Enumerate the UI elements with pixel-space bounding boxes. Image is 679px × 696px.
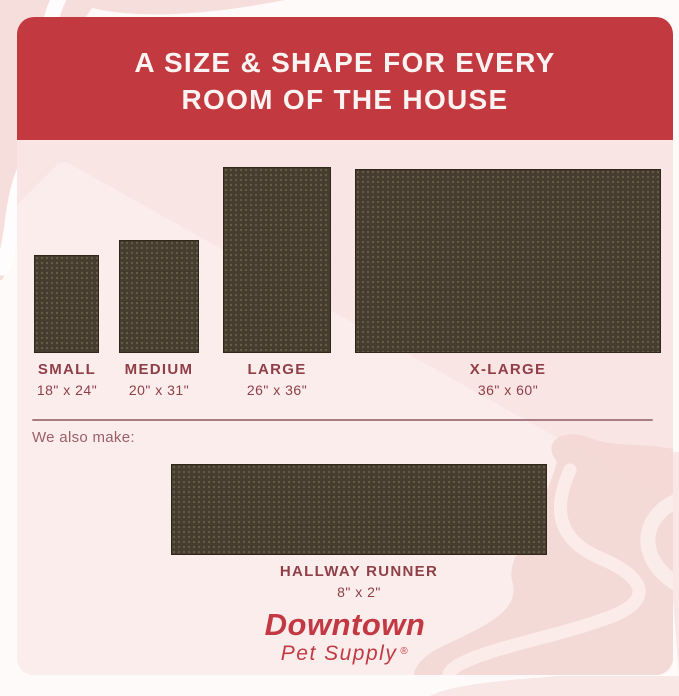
brand-subtitle: Pet Supply® [17,641,673,665]
card-body: SMALL 18" x 24" MEDIUM 20" x 31" LARGE 2… [17,140,673,675]
size-name: LARGE [207,360,347,380]
infographic-card: A SIZE & SHAPE FOR EVERY ROOM OF THE HOU… [17,17,673,675]
size-dimensions: 36" x 60" [438,380,578,400]
header-banner: A SIZE & SHAPE FOR EVERY ROOM OF THE HOU… [17,17,673,140]
registered-mark: ® [400,646,409,657]
header-title-line2: ROOM OF THE HOUSE [182,81,509,118]
size-label-xlarge: X-LARGE 36" x 60" [438,360,578,400]
size-dimensions: 26" x 36" [207,380,347,400]
mat-swatch-hallway-runner [171,464,547,555]
size-label-large: LARGE 26" x 36" [207,360,347,400]
mat-swatch-medium [119,240,199,353]
mat-swatch-xlarge [355,169,661,353]
runner-name: HALLWAY RUNNER [249,562,469,582]
runner-label: HALLWAY RUNNER 8" x 2" [249,562,469,602]
we-also-make-label: We also make: [32,429,135,446]
runner-dimensions: 8" x 2" [249,582,469,602]
header-title-line1: A SIZE & SHAPE FOR EVERY [134,44,555,81]
brand-name: Downtown [17,609,673,641]
section-divider [32,419,653,421]
size-name: X-LARGE [438,360,578,380]
brand-logo: Downtown Pet Supply® [17,609,673,665]
mat-swatch-large [223,167,331,353]
brand-subtitle-text: Pet Supply [281,642,398,665]
mat-swatch-small [34,255,99,353]
